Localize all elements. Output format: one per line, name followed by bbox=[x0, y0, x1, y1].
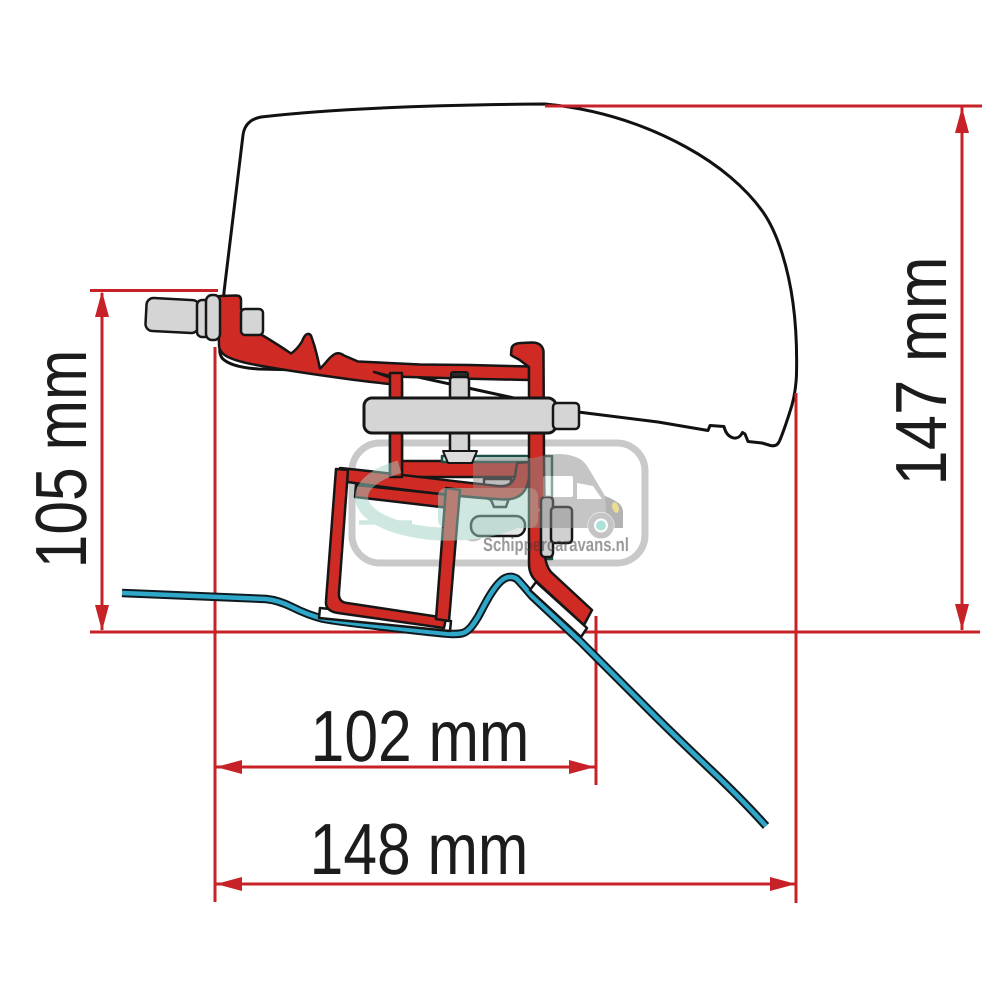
svg-text:102 mm: 102 mm bbox=[311, 696, 530, 777]
svg-text:105 mm: 105 mm bbox=[21, 350, 102, 569]
svg-text:Schippercaravans.nl: Schippercaravans.nl bbox=[483, 535, 629, 556]
svg-text:147 mm: 147 mm bbox=[881, 256, 962, 485]
svg-text:148 mm: 148 mm bbox=[310, 809, 529, 890]
